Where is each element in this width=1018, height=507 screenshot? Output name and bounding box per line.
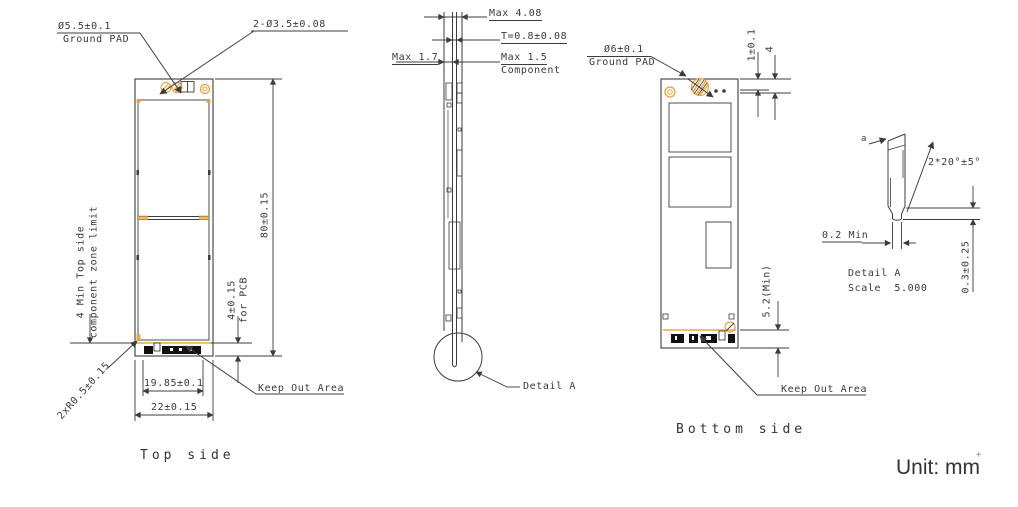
top-zone-limit-line2: component zone limit bbox=[89, 206, 100, 338]
detail-title-label: Detail A bbox=[848, 268, 901, 279]
top-pcb-offset-note: for PCB bbox=[239, 277, 250, 323]
cursor-artifact: + bbox=[976, 450, 981, 460]
bottom-edge-gap-label: 1±0.1 bbox=[747, 28, 758, 61]
bottom-keep-out-label: Keep Out Area bbox=[781, 384, 867, 395]
top-board-width-label: 22±0.15 bbox=[151, 402, 197, 413]
top-connector-width-label: 19.85±0.1 bbox=[144, 378, 204, 389]
top-ground-pad-dia-label: Ø5.5±0.1 bbox=[58, 21, 111, 32]
bottom-view-dimensions bbox=[740, 52, 791, 377]
detail-scale-label: Scale 5.000 bbox=[848, 283, 927, 294]
side-thickness-label: T=0.8±0.08 bbox=[501, 31, 567, 44]
side-max-bottom-label: Max 1.7 bbox=[392, 52, 438, 65]
side-component-label: Component bbox=[501, 65, 561, 76]
detail-a-view bbox=[869, 134, 933, 220]
bottom-ground-pad-dia-label: Ø6±0.1 bbox=[604, 44, 644, 55]
detail-chamfer-angle-label: 2*20°±5° bbox=[928, 157, 981, 168]
side-detail-ref-label: Detail A bbox=[523, 381, 576, 392]
bottom-view-connector-pads bbox=[671, 331, 735, 343]
bottom-view-leaders bbox=[587, 57, 866, 396]
top-board-length-label: 80±0.15 bbox=[260, 192, 271, 238]
top-ground-pad-text-label: Ground PAD bbox=[63, 34, 129, 45]
top-view-accents bbox=[137, 83, 212, 344]
top-view-connector-pads bbox=[144, 343, 201, 354]
bottom-view-pcb bbox=[661, 79, 738, 348]
drawing-canvas: Ø5.5±0.1 Ground PAD 2-Ø3.5±0.08 4 Min To… bbox=[0, 0, 1018, 507]
side-max-total-label: Max 4.08 bbox=[489, 8, 542, 21]
bottom-ground-pad-text-label: Ground PAD bbox=[589, 57, 655, 68]
top-view-ticks bbox=[137, 170, 211, 260]
bottom-pad-offset-label: 4 bbox=[765, 46, 776, 53]
bottom-connector-height-label: 5.2(Min) bbox=[762, 265, 773, 318]
bottom-view-dots bbox=[714, 89, 726, 93]
top-zone-limit-line1: 4 Min Top side bbox=[76, 226, 87, 319]
side-view bbox=[434, 12, 482, 381]
drawing-linework bbox=[0, 0, 1018, 507]
top-keep-out-label: Keep Out Area bbox=[258, 383, 344, 394]
bottom-view-caption: Bottom side bbox=[676, 422, 806, 437]
detail-datum-label: a bbox=[861, 134, 867, 145]
bottom-view-accents bbox=[663, 79, 736, 333]
side-max-top-label: Max 1.5 bbox=[501, 52, 547, 65]
top-holes-dia-label: 2-Ø3.5±0.08 bbox=[253, 19, 326, 30]
top-pcb-offset-label: 4±0.15 bbox=[227, 280, 238, 320]
detail-tip-height-label: 0.3±0.25 bbox=[961, 241, 972, 294]
top-view-caption: Top side bbox=[140, 448, 235, 463]
unit-note: Unit: mm bbox=[896, 456, 980, 480]
detail-min-width-label: 0.2 Min bbox=[822, 230, 868, 241]
